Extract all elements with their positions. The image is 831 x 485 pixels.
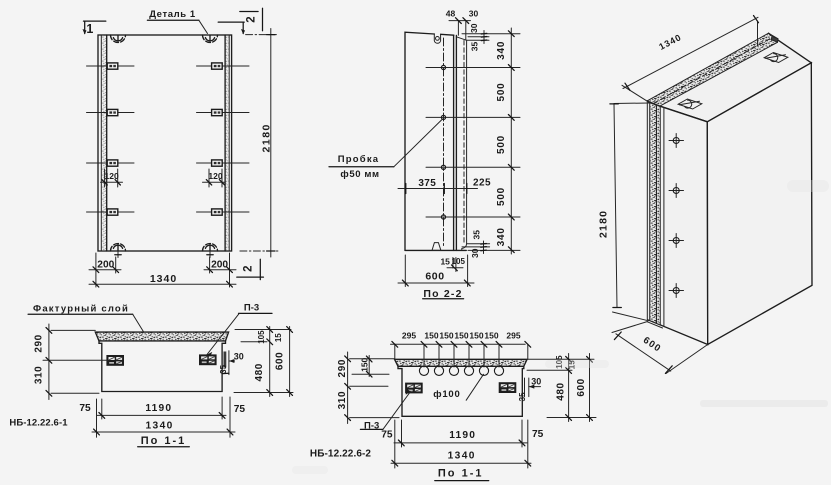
svg-text:15: 15 [274, 333, 283, 342]
svg-text:120: 120 [208, 171, 222, 181]
svg-text:150: 150 [484, 330, 498, 340]
svg-text:1190: 1190 [145, 403, 172, 414]
svg-text:2: 2 [246, 16, 258, 22]
svg-text:290: 290 [337, 359, 348, 378]
svg-text:500: 500 [496, 135, 507, 154]
svg-text:П-3: П-3 [244, 302, 259, 313]
svg-text:600: 600 [275, 352, 286, 371]
svg-text:2180: 2180 [261, 123, 273, 152]
svg-text:75: 75 [381, 430, 393, 441]
svg-text:150: 150 [359, 357, 369, 371]
svg-text:35: 35 [471, 230, 481, 240]
svg-text:105: 105 [257, 330, 266, 344]
svg-text:30: 30 [470, 248, 480, 258]
svg-text:310: 310 [34, 366, 45, 385]
svg-text:1340: 1340 [150, 273, 177, 285]
svg-text:35: 35 [518, 392, 527, 401]
svg-text:1340: 1340 [145, 420, 173, 431]
svg-text:1340: 1340 [448, 450, 476, 461]
svg-text:ф50 мм: ф50 мм [340, 169, 379, 180]
svg-text:Деталь 1: Деталь 1 [149, 9, 196, 20]
svg-text:375: 375 [418, 178, 436, 189]
svg-text:2180: 2180 [597, 210, 609, 238]
svg-text:290: 290 [34, 334, 45, 353]
svg-text:600: 600 [576, 378, 587, 397]
svg-text:200: 200 [211, 259, 228, 270]
svg-text:НБ-12.22.6-2: НБ-12.22.6-2 [310, 448, 372, 459]
svg-text:340: 340 [496, 227, 507, 246]
svg-text:120: 120 [105, 171, 119, 181]
svg-text:30: 30 [531, 377, 541, 387]
svg-text:1: 1 [86, 22, 93, 36]
svg-text:225: 225 [473, 177, 491, 188]
svg-text:1190: 1190 [449, 430, 476, 441]
svg-text:ф100: ф100 [433, 389, 460, 400]
svg-text:75: 75 [532, 429, 544, 440]
svg-text:30: 30 [234, 352, 244, 362]
svg-text:480: 480 [254, 363, 265, 382]
svg-text:500: 500 [496, 82, 507, 101]
svg-text:500: 500 [496, 187, 507, 206]
svg-text:310: 310 [337, 391, 348, 410]
svg-text:295: 295 [402, 330, 416, 340]
svg-text:По 1-1: По 1-1 [438, 467, 484, 479]
svg-text:НБ-12.22.6-1: НБ-12.22.6-1 [9, 418, 68, 429]
svg-text:48: 48 [446, 9, 456, 19]
svg-text:Фактурный слой: Фактурный слой [33, 303, 129, 314]
svg-text:150: 150 [424, 330, 438, 340]
svg-text:35: 35 [469, 42, 479, 52]
svg-text:2: 2 [243, 265, 255, 271]
svg-text:35: 35 [219, 364, 228, 373]
svg-text:30: 30 [469, 9, 479, 19]
svg-text:480: 480 [556, 382, 567, 401]
svg-text:295: 295 [506, 330, 520, 340]
svg-text:Пробка: Пробка [338, 154, 380, 165]
svg-text:30: 30 [469, 23, 479, 33]
svg-text:600: 600 [425, 270, 444, 282]
svg-text:200: 200 [97, 259, 114, 270]
svg-text:150: 150 [439, 330, 453, 340]
svg-text:15: 15 [440, 256, 450, 266]
svg-text:По 1-1: По 1-1 [141, 435, 187, 447]
svg-text:75: 75 [234, 404, 246, 415]
svg-text:105: 105 [452, 257, 466, 266]
svg-text:75: 75 [79, 403, 91, 414]
svg-text:150: 150 [454, 330, 468, 340]
svg-text:По 2-2: По 2-2 [423, 288, 462, 300]
svg-text:340: 340 [496, 41, 507, 60]
svg-text:150: 150 [469, 330, 483, 340]
